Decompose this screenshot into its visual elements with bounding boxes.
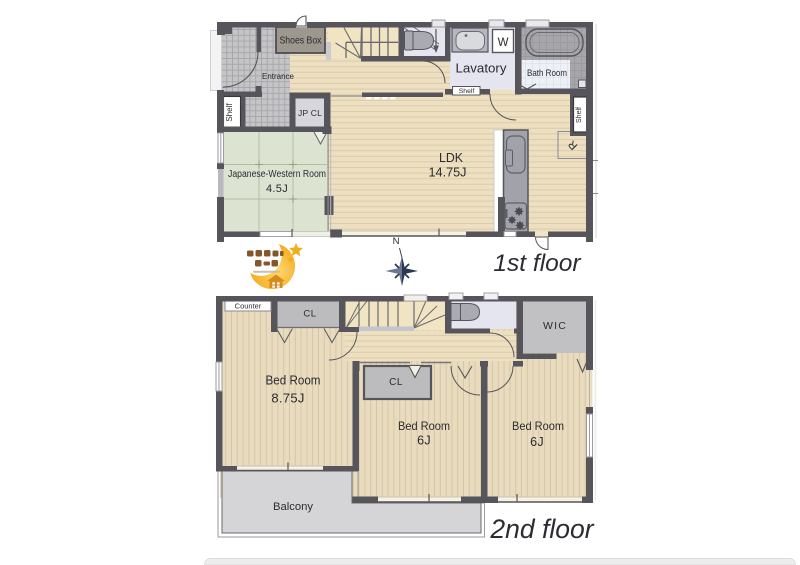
svg-text:JP CL: JP CL bbox=[298, 108, 322, 118]
svg-text:CL: CL bbox=[303, 309, 316, 320]
svg-text:Bed Room: Bed Room bbox=[398, 419, 450, 433]
svg-text:Bed Room: Bed Room bbox=[512, 419, 564, 433]
svg-text:Shelf: Shelf bbox=[576, 107, 583, 123]
svg-text:W: W bbox=[498, 37, 509, 49]
svg-text:Shoes Box: Shoes Box bbox=[280, 36, 322, 47]
svg-text:Bed Room: Bed Room bbox=[266, 374, 321, 388]
svg-text:Bath Room: Bath Room bbox=[527, 68, 567, 79]
svg-text:LDK: LDK bbox=[439, 151, 464, 165]
svg-text:N: N bbox=[393, 236, 400, 247]
svg-text:14.75J: 14.75J bbox=[429, 166, 467, 180]
svg-text:6J: 6J bbox=[417, 434, 431, 448]
svg-text:CL: CL bbox=[389, 377, 403, 388]
svg-text:Shelf: Shelf bbox=[225, 103, 234, 122]
svg-text:4.5J: 4.5J bbox=[266, 183, 288, 195]
svg-text:8.75J: 8.75J bbox=[271, 391, 304, 406]
svg-text:Balcony: Balcony bbox=[273, 501, 314, 513]
svg-text:Counter: Counter bbox=[235, 302, 262, 311]
svg-text:WIC: WIC bbox=[543, 320, 567, 332]
svg-text:Lavatory: Lavatory bbox=[456, 62, 508, 76]
svg-text:1st floor: 1st floor bbox=[493, 250, 581, 277]
svg-text:6J: 6J bbox=[530, 435, 544, 449]
svg-text:Japanese-Western Room: Japanese-Western Room bbox=[228, 169, 326, 180]
svg-text:2nd floor: 2nd floor bbox=[489, 514, 594, 544]
svg-text:Entrance: Entrance bbox=[262, 71, 294, 81]
svg-text:Shelf: Shelf bbox=[459, 88, 475, 95]
